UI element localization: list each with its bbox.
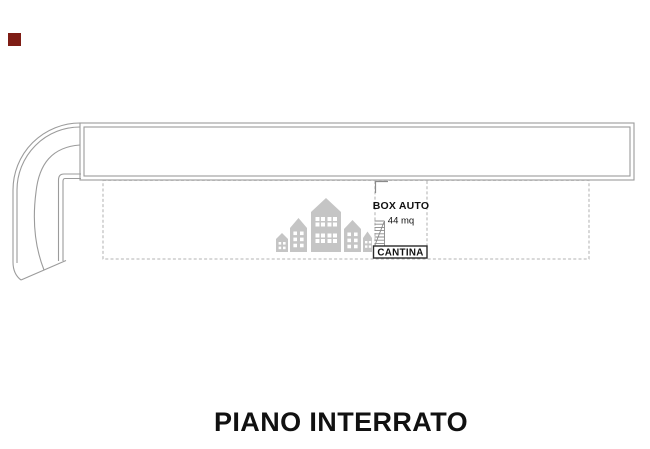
house-icon (311, 198, 341, 252)
house-icon (290, 218, 307, 252)
houses-watermark-icon (276, 198, 372, 252)
stairs-icon (375, 221, 385, 246)
page-title: PIANO INTERRATO (214, 407, 468, 438)
box-auto-area: 44 mq (388, 216, 414, 227)
cantina-label: CANTINA (377, 248, 423, 259)
floor-plan-page: BOX AUTO 44 mq CANTINA PIANO INTERRATO (0, 0, 650, 449)
house-icon (363, 232, 372, 253)
house-icon (344, 220, 361, 252)
box-auto-label: BOX AUTO (373, 200, 429, 212)
house-icon (276, 233, 288, 252)
cantina-room: CANTINA (374, 246, 428, 259)
ramp-driveway (13, 123, 81, 280)
floor-plan-drawing: BOX AUTO 44 mq CANTINA (0, 0, 650, 449)
garage-corridor (80, 123, 634, 180)
